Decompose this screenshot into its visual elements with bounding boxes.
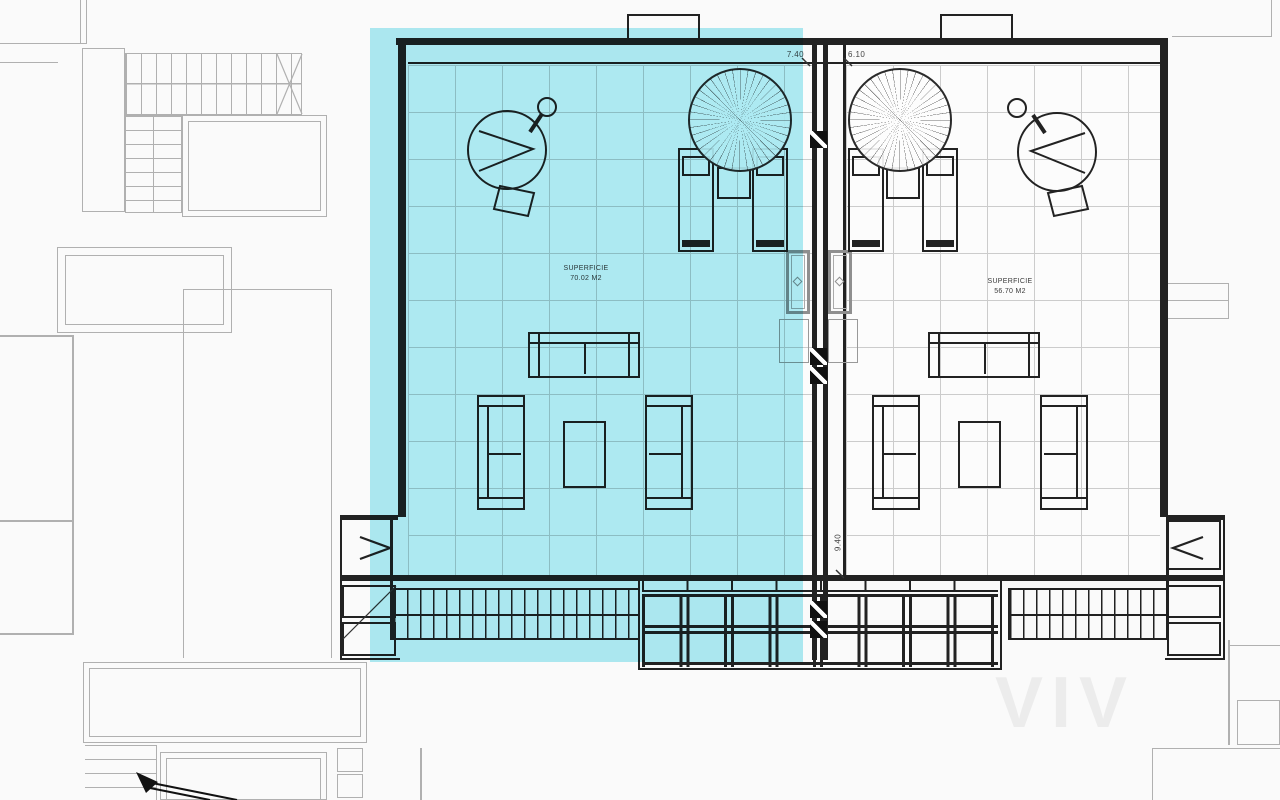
dimension-ticks bbox=[802, 58, 852, 578]
parasol-closed-right-icon bbox=[1008, 99, 1096, 216]
x-brace bbox=[277, 54, 302, 114]
chevron-left-icon bbox=[1173, 537, 1203, 559]
stair-arrow-icon bbox=[136, 772, 237, 800]
dimension-label-left-width: 7.40 bbox=[762, 50, 804, 59]
parasol-closed-left-icon bbox=[468, 98, 556, 216]
dimension-label-depth: 9.40 bbox=[834, 523, 843, 563]
diagonal-line bbox=[343, 586, 396, 639]
area-label-left-value: 70.02 M2 bbox=[546, 274, 626, 284]
area-label-right-value: 56.70 M2 bbox=[970, 287, 1050, 297]
floor-plan-canvas: VIV bbox=[0, 0, 1280, 800]
area-label-left: SUPERFICIE 70.02 M2 bbox=[546, 264, 626, 284]
area-label-right-title: SUPERFICIE bbox=[970, 277, 1050, 287]
dimension-label-right-width: 6.10 bbox=[848, 50, 890, 59]
area-label-left-title: SUPERFICIE bbox=[546, 264, 626, 274]
chevron-right-icon bbox=[360, 537, 390, 559]
plan-linework-overlay bbox=[0, 0, 1280, 800]
area-label-right: SUPERFICIE 56.70 M2 bbox=[970, 277, 1050, 297]
